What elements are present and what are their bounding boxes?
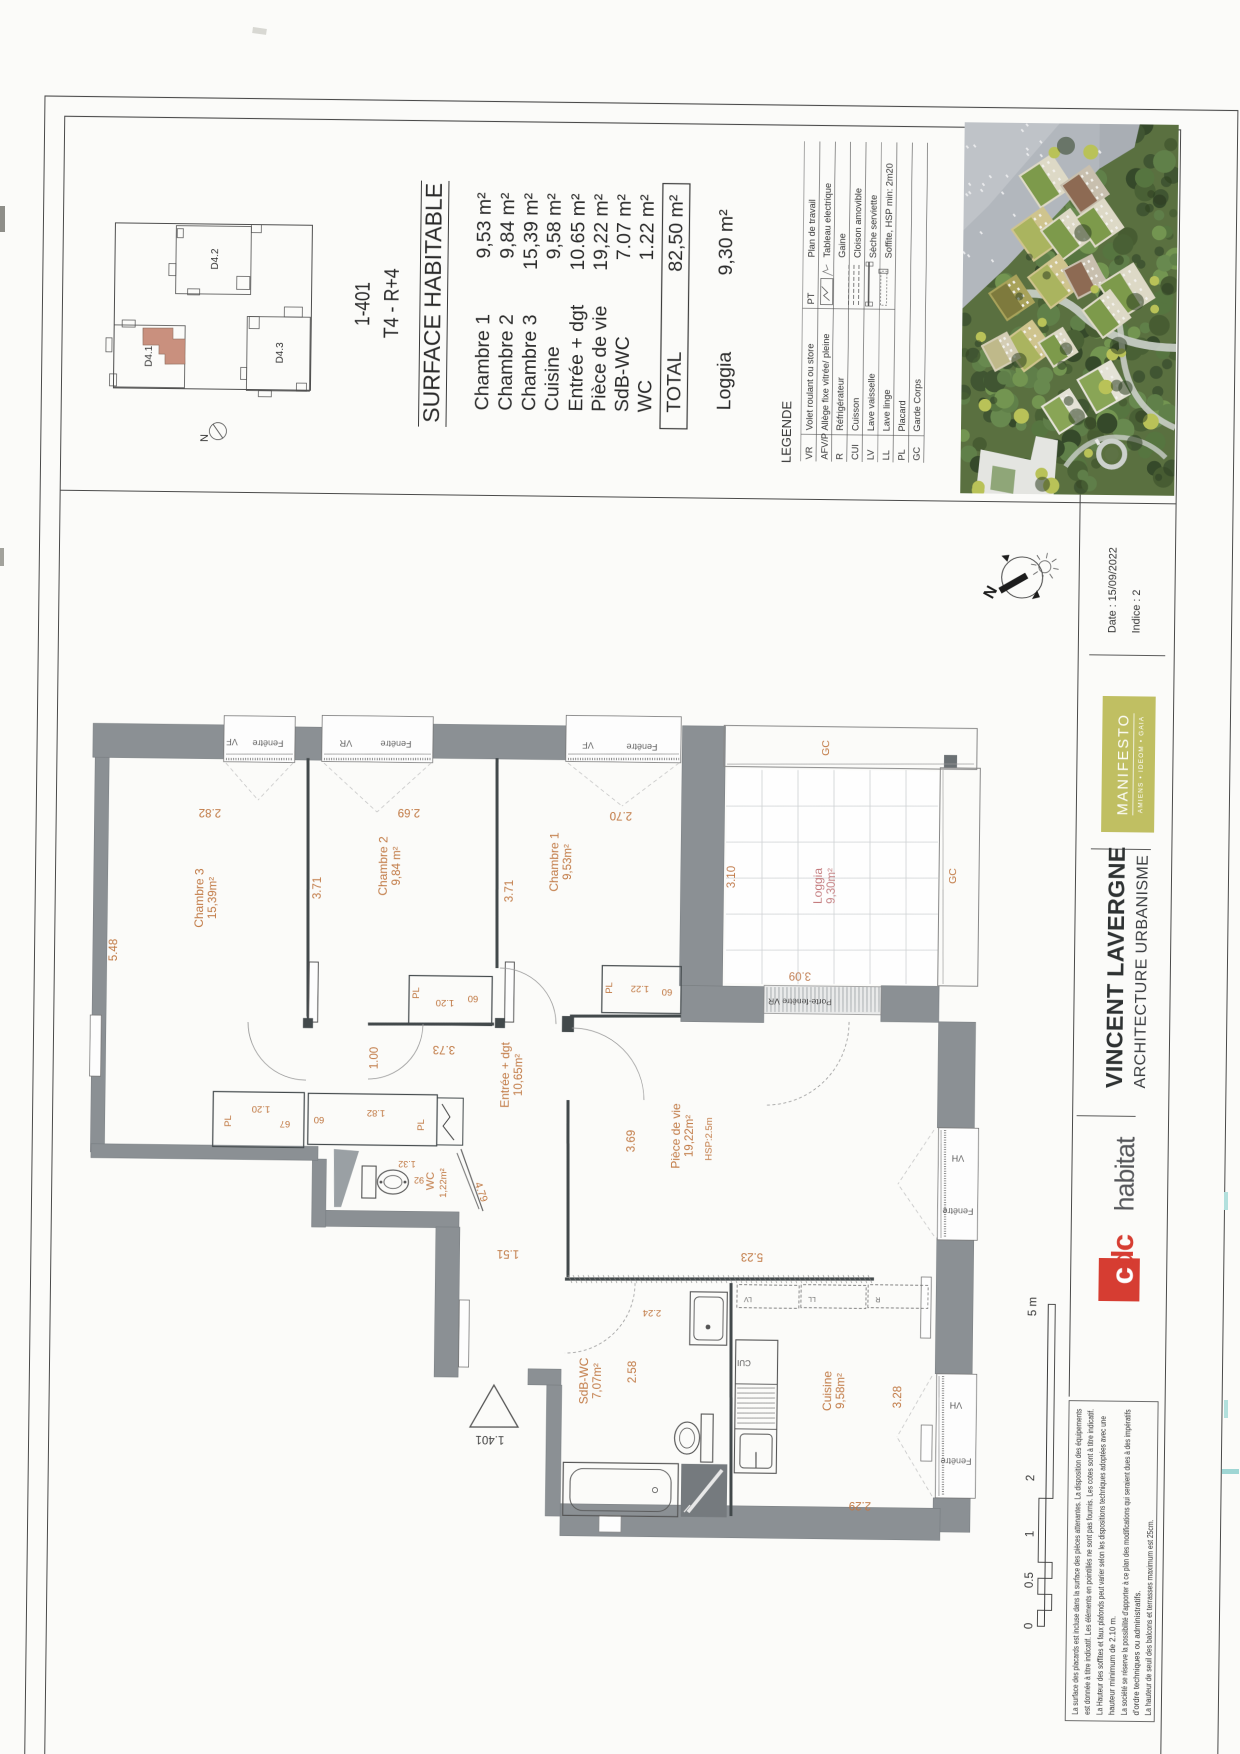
svg-text:19,22m²: 19,22m²	[684, 1115, 697, 1158]
svg-text:3.71: 3.71	[504, 880, 516, 903]
svg-text:1.20: 1.20	[252, 1103, 271, 1114]
svg-text:Allège fixe vitrée/ pleine: Allège fixe vitrée/ pleine	[820, 333, 831, 430]
svg-text:AMIENS • IDEOM • GAIA: AMIENS • IDEOM • GAIA	[1137, 716, 1145, 814]
svg-text:Porte-fenêtre VR: Porte-fenêtre VR	[768, 997, 832, 1008]
svg-text:60: 60	[314, 1114, 325, 1125]
svg-text:SdB-WC: SdB-WC	[611, 336, 634, 412]
svg-text:Lave vaisselle: Lave vaisselle	[866, 373, 877, 431]
svg-text:GC: GC	[912, 446, 922, 460]
svg-text:3.71: 3.71	[312, 877, 324, 900]
svg-text:R: R	[875, 1295, 880, 1302]
svg-text:c: c	[1105, 1267, 1140, 1285]
svg-text:WC: WC	[634, 380, 656, 413]
svg-text:0: 0	[1023, 1623, 1035, 1630]
svg-text:Plan de travail: Plan de travail	[806, 199, 817, 257]
svg-text:Cuisine: Cuisine	[820, 1371, 834, 1412]
svg-text:PL: PL	[411, 987, 422, 999]
svg-text:19,22 m²: 19,22 m²	[590, 193, 613, 271]
svg-text:1.32: 1.32	[398, 1159, 416, 1169]
svg-text:Chambre 1: Chambre 1	[547, 832, 562, 892]
svg-text:VR: VR	[339, 738, 352, 748]
svg-text:10.65 m²: 10.65 m²	[567, 193, 590, 271]
svg-text:1.82: 1.82	[367, 1107, 386, 1118]
svg-text:Chambre 1: Chambre 1	[471, 314, 494, 411]
svg-text:3.28: 3.28	[892, 1386, 904, 1409]
svg-text:1.00: 1.00	[369, 1047, 381, 1070]
svg-text:PL: PL	[896, 449, 906, 460]
svg-text:0.5: 0.5	[1024, 1572, 1036, 1588]
svg-text:2.70: 2.70	[610, 809, 633, 821]
svg-text:10,65m²: 10,65m²	[513, 1054, 526, 1097]
svg-text:VF: VF	[226, 737, 238, 747]
svg-text:Chambre 3: Chambre 3	[518, 314, 541, 411]
svg-text:Tableau electrique: Tableau electrique	[822, 183, 833, 258]
svg-text:67: 67	[280, 1118, 291, 1129]
svg-text:hauteur minimum de 2.10 m.: hauteur minimum de 2.10 m.	[1107, 1616, 1117, 1715]
svg-text:9,30m²: 9,30m²	[826, 868, 838, 904]
svg-text:2.58: 2.58	[627, 1361, 639, 1384]
svg-text:9,58m²: 9,58m²	[835, 1373, 847, 1409]
svg-text:Réfrigérateur: Réfrigérateur	[835, 377, 846, 431]
svg-text:Fenêtre: Fenêtre	[626, 742, 657, 752]
svg-text:60: 60	[662, 986, 673, 997]
svg-text:GC: GC	[820, 740, 832, 756]
svg-text:Loggia: Loggia	[811, 868, 825, 905]
svg-text:PL: PL	[223, 1115, 234, 1127]
svg-text:HSP:2.5m: HSP:2.5m	[704, 1117, 716, 1161]
svg-text:Fenêtre: Fenêtre	[252, 738, 283, 748]
svg-text:1.401: 1.401	[475, 1433, 504, 1445]
svg-text:5.48: 5.48	[108, 939, 120, 962]
svg-text:Fenêtre: Fenêtre	[942, 1206, 973, 1216]
svg-text:9,53 m²: 9,53 m²	[473, 192, 496, 259]
svg-text:LL: LL	[881, 450, 891, 460]
svg-text:Indice : 2: Indice : 2	[1131, 589, 1144, 633]
svg-text:Chambre 3: Chambre 3	[192, 868, 207, 928]
svg-text:Cloison amovible: Cloison amovible	[853, 188, 864, 258]
svg-text:Garde Corps: Garde Corps	[912, 379, 923, 432]
svg-text:Chambre 2: Chambre 2	[376, 836, 391, 896]
svg-text:SURFACE HABITABLE: SURFACE HABITABLE	[418, 183, 447, 423]
svg-text:T4 - R+4: T4 - R+4	[379, 268, 404, 338]
svg-text:1.20: 1.20	[436, 997, 455, 1008]
svg-text:VH: VH	[952, 1153, 965, 1163]
svg-text:LV: LV	[744, 1295, 752, 1302]
svg-text:CUI: CUI	[850, 444, 860, 460]
svg-text:Chambre 2: Chambre 2	[495, 314, 518, 411]
svg-text:Date : 15/09/2022: Date : 15/09/2022	[1107, 547, 1120, 633]
svg-text:TOTAL: TOTAL	[663, 351, 686, 412]
svg-text:ARCHITECTURE URBANISME: ARCHITECTURE URBANISME	[1132, 855, 1152, 1089]
svg-text:7.07 m²: 7.07 m²	[613, 193, 636, 260]
svg-text:Cuisson: Cuisson	[851, 398, 861, 431]
svg-text:d'ordre techniques ou administ: d'ordre techniques ou administratifs.	[1132, 1590, 1143, 1715]
svg-text:Pièce de vie: Pièce de vie	[669, 1103, 684, 1169]
svg-text:Volet roulant ou store: Volet roulant ou store	[804, 343, 815, 430]
svg-text:2.82: 2.82	[199, 806, 222, 818]
svg-text:92: 92	[414, 1175, 424, 1185]
svg-text:Fenêtre: Fenêtre	[380, 739, 411, 749]
svg-text:VR: VR	[804, 446, 814, 459]
svg-text:2.69: 2.69	[398, 806, 421, 818]
svg-text:Gaine: Gaine	[837, 233, 847, 258]
svg-text:D4.3: D4.3	[275, 342, 286, 364]
svg-text:9,53m²: 9,53m²	[562, 844, 574, 880]
svg-text:2: 2	[1025, 1475, 1037, 1482]
svg-text:3.09: 3.09	[789, 969, 812, 981]
svg-text:LV: LV	[866, 449, 876, 461]
svg-text:Placard: Placard	[897, 400, 907, 431]
svg-text:D4.1: D4.1	[144, 345, 155, 367]
svg-text:MANIFESTO: MANIFESTO	[1115, 713, 1132, 816]
svg-text:1.22 m²: 1.22 m²	[636, 194, 659, 261]
svg-text:1.51: 1.51	[497, 1247, 520, 1259]
svg-text:CUI: CUI	[737, 1358, 751, 1367]
svg-text:3.69: 3.69	[626, 1130, 638, 1153]
svg-text:9,58 m²: 9,58 m²	[543, 193, 566, 260]
svg-text:9,84 m²: 9,84 m²	[497, 192, 520, 259]
svg-text:Entrée + dgt: Entrée + dgt	[565, 304, 588, 412]
svg-text:PT: PT	[806, 292, 816, 304]
svg-text:VINCENT LAVERGNE: VINCENT LAVERGNE	[1101, 846, 1130, 1088]
svg-text:3.10: 3.10	[726, 866, 738, 889]
svg-text:WC: WC	[425, 1172, 437, 1191]
svg-text:9,30 m²: 9,30 m²	[715, 209, 738, 276]
svg-text:Sèche serviette: Sèche serviette	[868, 195, 879, 258]
svg-text:Cuisine: Cuisine	[541, 346, 564, 411]
svg-text:GC: GC	[947, 868, 959, 884]
svg-text:3.73: 3.73	[433, 1043, 456, 1055]
svg-text:9,84 m²: 9,84 m²	[391, 846, 403, 885]
svg-text:15,39m²: 15,39m²	[207, 877, 220, 920]
svg-text:Pièce de vie: Pièce de vie	[588, 305, 611, 411]
svg-text:2.24: 2.24	[643, 1307, 662, 1318]
svg-text:N: N	[199, 434, 211, 442]
svg-text:Soffite, HSP min: 2m20: Soffite, HSP min: 2m20	[883, 163, 894, 258]
svg-text:habitat: habitat	[1109, 1136, 1140, 1212]
svg-text:1.22: 1.22	[631, 983, 650, 994]
svg-text:15,39 m²: 15,39 m²	[520, 192, 543, 270]
svg-text:1: 1	[1024, 1531, 1036, 1538]
svg-text:AFV/P: AFV/P	[819, 433, 829, 460]
svg-text:7,07m²: 7,07m²	[592, 1363, 604, 1399]
svg-text:Loggia: Loggia	[713, 351, 736, 410]
svg-text:R: R	[835, 453, 845, 460]
svg-text:1-401: 1-401	[350, 282, 375, 326]
svg-text:VH: VH	[950, 1400, 963, 1410]
svg-text:5 m: 5 m	[1027, 1297, 1039, 1316]
svg-text:LL: LL	[808, 1295, 816, 1302]
svg-text:LEGENDE: LEGENDE	[779, 401, 795, 464]
svg-text:2.29: 2.29	[849, 1499, 872, 1511]
svg-text:VF: VF	[582, 740, 594, 750]
svg-text:60: 60	[468, 993, 479, 1004]
svg-text:PL: PL	[604, 982, 615, 994]
svg-text:SdB-WC: SdB-WC	[577, 1357, 592, 1404]
svg-text:D4.2: D4.2	[210, 248, 221, 270]
svg-text:1,22m²: 1,22m²	[438, 1168, 449, 1198]
svg-text:Fenêtre: Fenêtre	[940, 1456, 971, 1466]
svg-text:Lave linge: Lave linge	[881, 389, 892, 431]
svg-text:PL: PL	[416, 1119, 427, 1131]
svg-text:5.23: 5.23	[741, 1250, 764, 1262]
svg-text:Entrée + dgt: Entrée + dgt	[498, 1041, 513, 1108]
svg-text:82,50 m²: 82,50 m²	[665, 194, 688, 272]
